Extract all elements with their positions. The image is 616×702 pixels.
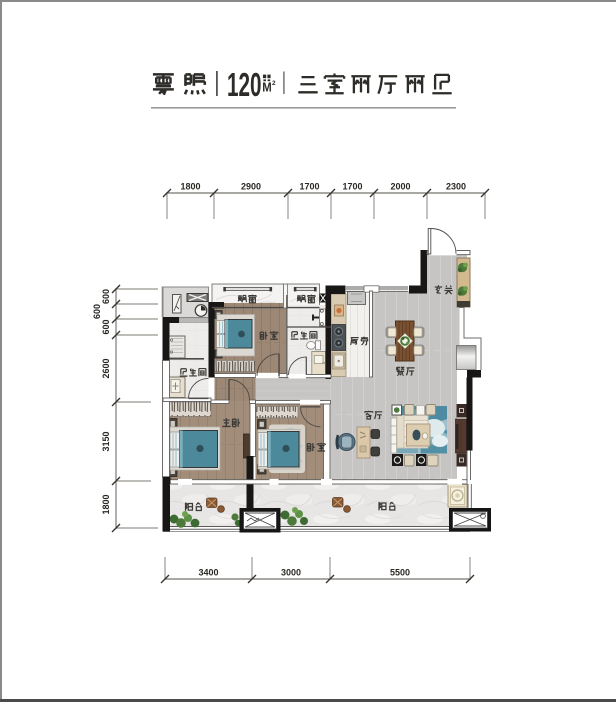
svg-text:2600: 2600	[101, 358, 111, 378]
svg-text:600: 600	[92, 304, 102, 319]
svg-text:600: 600	[101, 289, 111, 304]
svg-text:3400: 3400	[198, 568, 218, 578]
svg-text:5500: 5500	[390, 568, 410, 578]
svg-text:2: 2	[272, 80, 276, 87]
svg-text:3150: 3150	[101, 431, 111, 451]
svg-text:1800: 1800	[180, 182, 200, 192]
svg-text:1800: 1800	[101, 494, 111, 514]
svg-text:2900: 2900	[241, 182, 261, 192]
svg-text:M: M	[262, 81, 272, 95]
svg-text:120: 120	[227, 67, 262, 104]
svg-text:600: 600	[101, 319, 111, 334]
svg-text:1700: 1700	[299, 182, 319, 192]
svg-text:2300: 2300	[446, 182, 466, 192]
svg-text:3000: 3000	[281, 568, 301, 578]
svg-text:1700: 1700	[342, 182, 362, 192]
svg-text:2000: 2000	[390, 182, 410, 192]
